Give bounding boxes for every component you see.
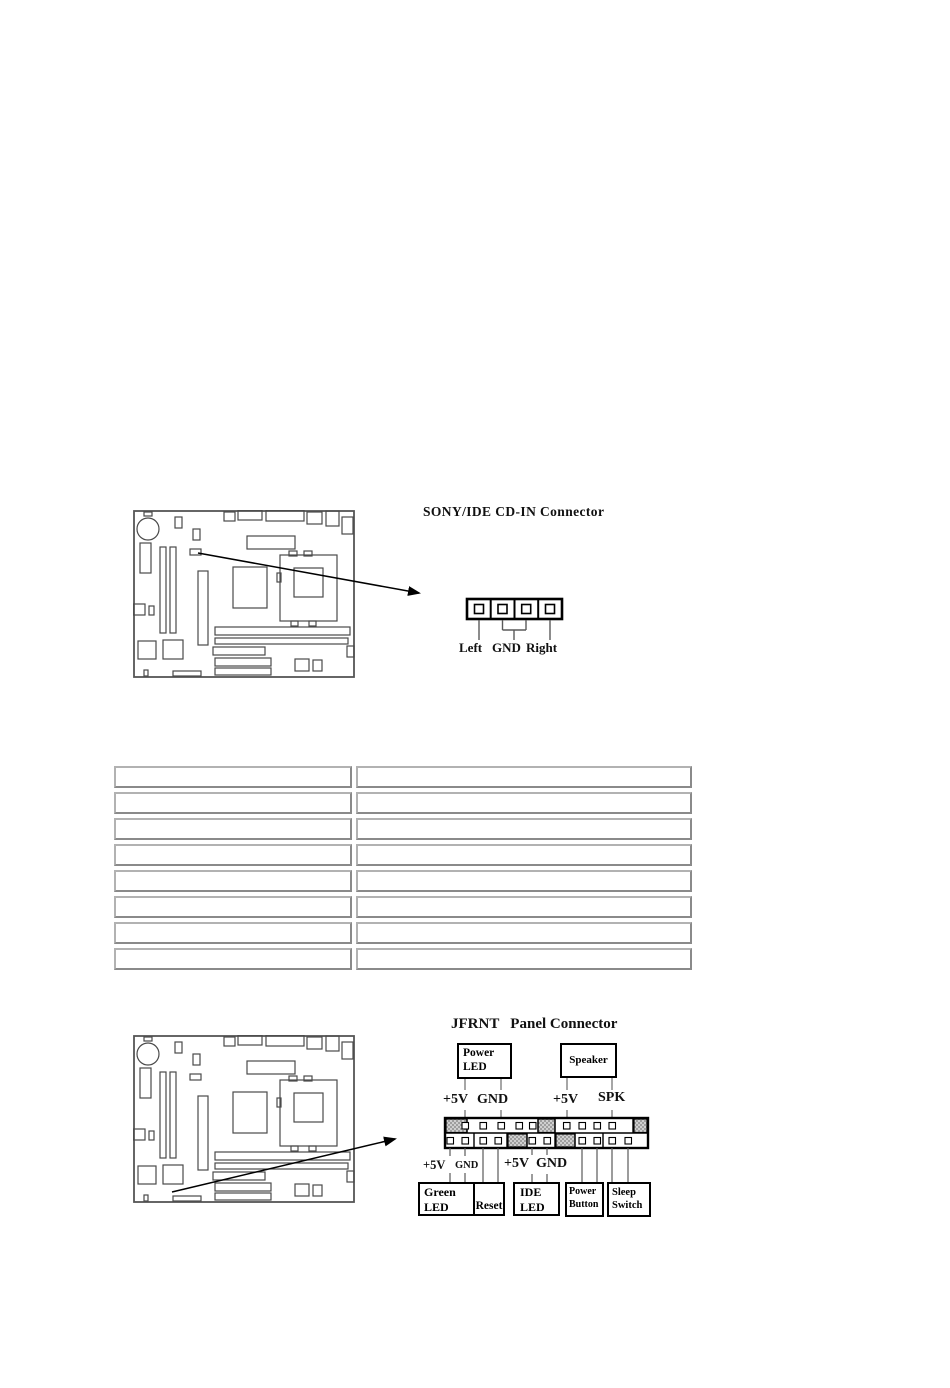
- speaker-box: Speaker: [560, 1043, 617, 1078]
- table-cell: [356, 948, 692, 970]
- table-cell: [356, 896, 692, 918]
- table-cell: [356, 922, 692, 944]
- motherboard-diagram-top: [133, 510, 354, 677]
- spec-table: [114, 766, 692, 970]
- green-led-box: Green LED: [418, 1182, 477, 1216]
- jfrnt-top-label-spk: SPK: [598, 1090, 625, 1106]
- cdin-section-title: SONY/IDE CD-IN Connector: [423, 504, 604, 520]
- callout-arrow-bottom: [172, 1139, 395, 1192]
- jfrnt-top-label-5v-1: +5V: [443, 1092, 468, 1108]
- table-cell: [356, 766, 692, 788]
- ide-led-box: IDE LED: [513, 1182, 560, 1216]
- jfrnt-bottom-label-gnd-1: GND: [455, 1160, 478, 1171]
- motherboard-diagram-bottom: [133, 1035, 354, 1202]
- table-cell: [356, 818, 692, 840]
- table-cell: [114, 818, 352, 840]
- jfrnt-bottom-label-5v-1: +5V: [423, 1158, 445, 1173]
- table-cell: [356, 844, 692, 866]
- jfrnt-section-title: JFRNT Panel Connector: [451, 1016, 617, 1033]
- jfrnt-bottom-label-gnd-2: GND: [536, 1156, 567, 1172]
- cdin-pin-label-gnd: GND: [492, 640, 521, 656]
- cdin-connector-diagram: [467, 599, 562, 640]
- table-cell: [114, 896, 352, 918]
- table-cell: [114, 922, 352, 944]
- sleep-switch-box: Sleep Switch: [607, 1182, 651, 1217]
- table-cell: [114, 948, 352, 970]
- reset-box: Reset: [473, 1182, 505, 1216]
- jfrnt-connector-strip: [445, 1118, 648, 1148]
- jfrnt-top-label-gnd: GND: [477, 1092, 508, 1108]
- cdin-pin-label-left: Left: [459, 640, 482, 656]
- diagram-graphics-layer: [0, 0, 950, 1388]
- cdin-pin-label-right: Right: [526, 640, 557, 656]
- jfrnt-bottom-label-5v-2: +5V: [504, 1156, 529, 1172]
- power-button-box: Power Button: [565, 1182, 604, 1217]
- table-cell: [356, 870, 692, 892]
- table-cell: [114, 766, 352, 788]
- callout-arrow-top: [198, 553, 419, 593]
- power-led-box: Power LED: [457, 1043, 512, 1079]
- jfrnt-top-label-5v-2: +5V: [553, 1092, 578, 1108]
- table-cell: [114, 792, 352, 814]
- table-cell: [356, 792, 692, 814]
- table-cell: [114, 844, 352, 866]
- table-cell: [114, 870, 352, 892]
- manual-page: SONY/IDE CD-IN Connector Left GND Right …: [0, 0, 950, 1388]
